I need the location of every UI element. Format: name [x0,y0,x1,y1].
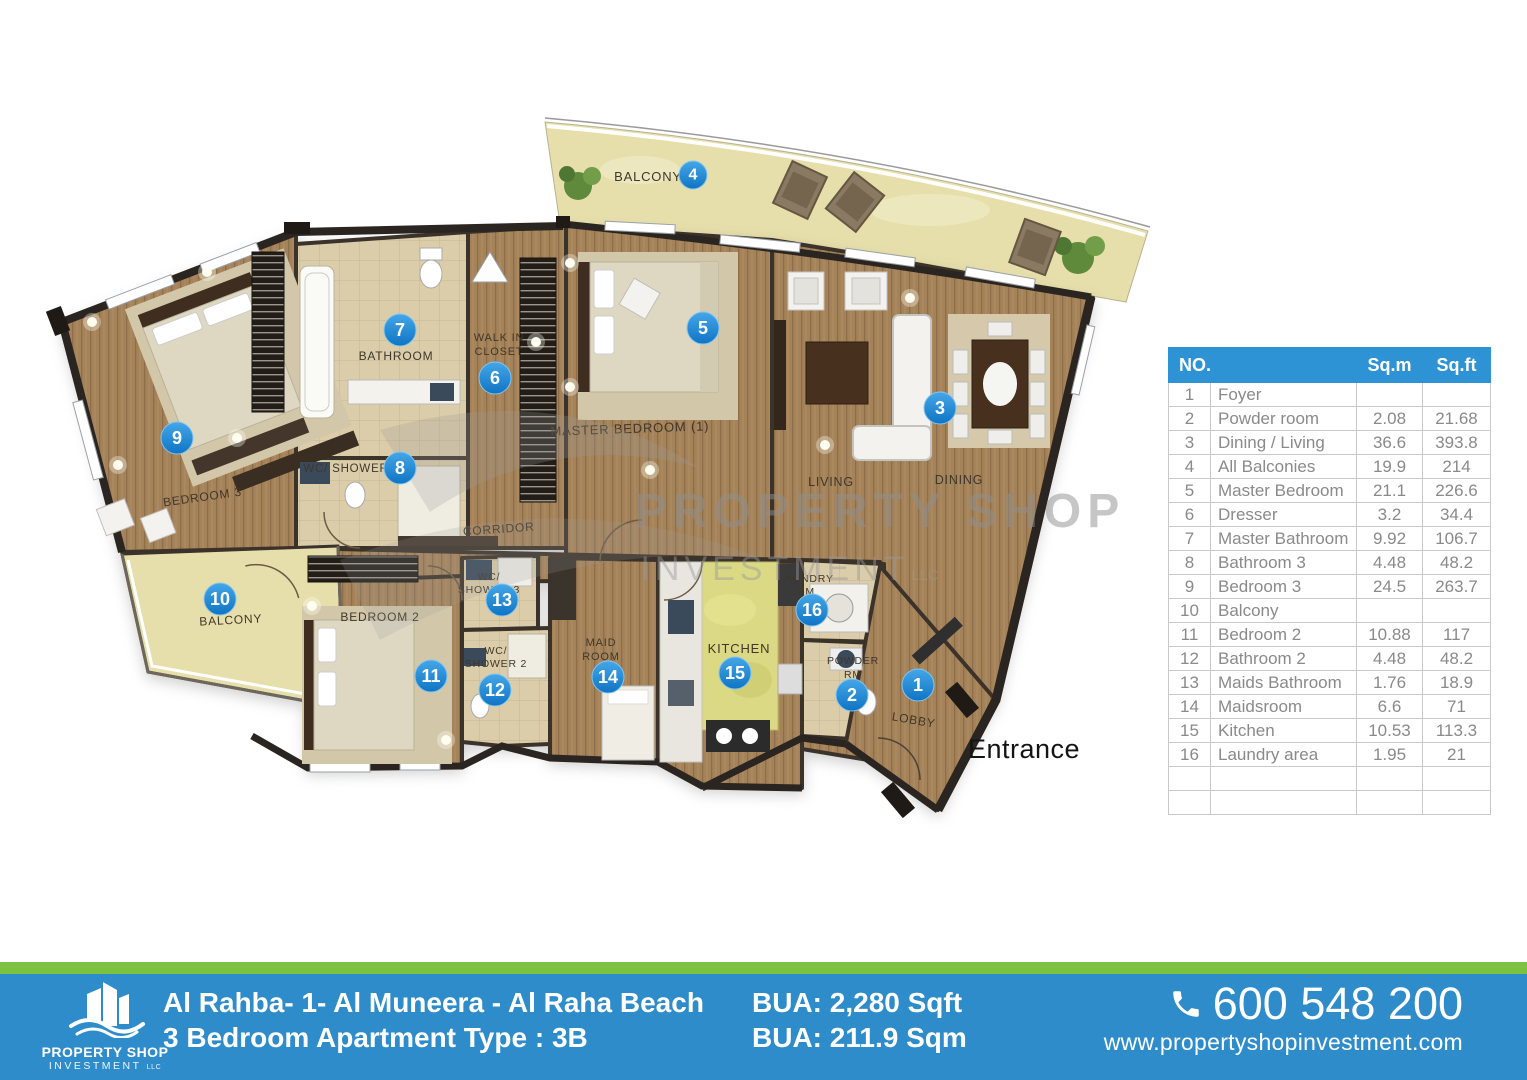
room-sqm: 36.6 [1357,431,1423,455]
hob [668,680,694,706]
room-sqft: 71 [1423,695,1491,719]
room-sqft: 18.9 [1423,671,1491,695]
wardrobe-bedroom-3 [252,252,284,412]
label-walk-in-2: CLOSET [475,346,524,358]
row-number: 3 [1169,431,1211,455]
footer: PROPERTY SHOP INVESTMENT LLC Al Rahba- 1… [0,962,1527,1080]
room-sqm [1357,791,1423,815]
logo-line2: INVESTMENT LLC [30,1060,180,1072]
room-name: Balcony [1211,599,1357,623]
area-table-header: NO. Sq.m Sq.ft [1169,348,1491,383]
room-marker-4: 4 [679,161,707,189]
room-name: Dining / Living [1211,431,1357,455]
header-sqm: Sq.m [1357,348,1423,383]
label-kitchen: KITCHEN [708,641,771,656]
room-sqft [1423,599,1491,623]
label-walk-in-1: WALK IN [474,332,524,344]
room-sqm [1357,599,1423,623]
svg-text:8: 8 [395,458,405,478]
room-sqm: 1.76 [1357,671,1423,695]
company-logo: PROPERTY SHOP INVESTMENT LLC [30,980,180,1072]
bua-sqm: BUA: 211.9 Sqm [752,1020,967,1055]
room-name: All Balconies [1211,455,1357,479]
label-wc2-a: WC/ [485,645,508,657]
table-row: 6Dresser3.234.4 [1169,503,1491,527]
table-row: 7Master Bathroom9.92106.7 [1169,527,1491,551]
room-marker-12: 12 [479,674,511,706]
room-sqft: 226.6 [1423,479,1491,503]
row-number [1169,767,1211,791]
label-balcony-top: BALCONY [614,169,682,184]
area-table-body: 1Foyer2Powder room2.0821.683Dining / Liv… [1169,383,1491,815]
room-name: Laundry area [1211,743,1357,767]
svg-text:7: 7 [395,320,405,340]
label-maid-2: ROOM [582,651,619,663]
svg-text:14: 14 [598,667,618,687]
row-number: 16 [1169,743,1211,767]
svg-text:11: 11 [421,666,440,686]
table-row: 1Foyer [1169,383,1491,407]
table-row: 4All Balconies19.9214 [1169,455,1491,479]
label-wc2-b: SHOWER 2 [465,658,527,670]
room-name [1211,767,1357,791]
svg-text:13: 13 [492,590,512,610]
room-sqm: 4.48 [1357,647,1423,671]
table-row: 10Balcony [1169,599,1491,623]
row-number: 1 [1169,383,1211,407]
room-marker-8: 8 [384,452,416,484]
room-marker-13: 13 [486,584,518,616]
row-number: 12 [1169,647,1211,671]
svg-text:5: 5 [698,318,708,338]
table-row: 8Bathroom 34.4848.2 [1169,551,1491,575]
table-row: 5Master Bedroom21.1226.6 [1169,479,1491,503]
row-number: 14 [1169,695,1211,719]
shower-pan [508,634,546,678]
toilet [420,260,442,288]
row-number: 5 [1169,479,1211,503]
row-number: 6 [1169,503,1211,527]
toilet-tank [420,248,442,260]
bathtub [300,266,334,418]
flyer-page: BALCONY BATHROOM WALK IN CLOSET MASTER B… [0,0,1527,1080]
room-marker-1: 1 [902,669,934,701]
logo-line1: PROPERTY SHOP [30,1044,180,1060]
svg-text:4: 4 [689,167,698,184]
room-marker-9: 9 [161,422,193,454]
row-number: 10 [1169,599,1211,623]
contact-info: 600 548 200 www.propertyshopinvestment.c… [1104,979,1463,1055]
svg-text:6: 6 [490,368,500,388]
row-number: 9 [1169,575,1211,599]
room-name: Kitchen [1211,719,1357,743]
room-sqm: 10.88 [1357,623,1423,647]
room-sqft [1423,767,1491,791]
address-line1: Al Rahba- 1- Al Muneera - Al Raha Beach [163,985,704,1020]
room-sqft: 34.4 [1423,503,1491,527]
footer-bar: PROPERTY SHOP INVESTMENT LLC Al Rahba- 1… [0,974,1527,1080]
row-number: 11 [1169,623,1211,647]
room-sqft: 48.2 [1423,551,1491,575]
row-number [1169,791,1211,815]
row-number: 13 [1169,671,1211,695]
room-name: Maidsroom [1211,695,1357,719]
svg-text:2: 2 [847,685,857,705]
dishwasher [778,664,802,694]
room-name [1211,791,1357,815]
room-sqm: 3.2 [1357,503,1423,527]
room-name: Master Bathroom [1211,527,1357,551]
coffee-table [806,342,868,404]
phone-number: 600 548 200 [1213,979,1463,1029]
room-sqft: 48.2 [1423,647,1491,671]
svg-text:12: 12 [485,680,505,700]
room-name: Master Bedroom [1211,479,1357,503]
room-name: Bedroom 2 [1211,623,1357,647]
room-sqft [1423,383,1491,407]
table-row: 15Kitchen10.53113.3 [1169,719,1491,743]
room-name: Foyer [1211,383,1357,407]
tv-unit [774,320,786,430]
watermark-suffix: LLC [911,567,939,584]
room-sqm: 9.92 [1357,527,1423,551]
stove [706,720,770,752]
row-number: 7 [1169,527,1211,551]
room-sqm: 24.5 [1357,575,1423,599]
entrance-label: Entrance [968,734,1080,764]
room-sqm: 6.6 [1357,695,1423,719]
property-address: Al Rahba- 1- Al Muneera - Al Raha Beach … [163,985,704,1055]
room-name: Bedroom 3 [1211,575,1357,599]
table-row: 3Dining / Living36.6393.8 [1169,431,1491,455]
room-sqft: 106.7 [1423,527,1491,551]
watermark-line2: INVESTMENT [640,550,909,588]
room-name: Bathroom 2 [1211,647,1357,671]
room-marker-10: 10 [204,583,236,615]
room-sqft: 21.68 [1423,407,1491,431]
row-number: 2 [1169,407,1211,431]
row-number: 4 [1169,455,1211,479]
table-row [1169,791,1491,815]
room-sqm: 4.48 [1357,551,1423,575]
room-marker-6: 6 [479,362,511,394]
room-marker-2: 2 [836,679,868,711]
bua-sqft: BUA: 2,280 Sqft [752,985,967,1020]
row-number: 15 [1169,719,1211,743]
label-maid-1: MAID [586,637,617,649]
room-sqm: 21.1 [1357,479,1423,503]
kitchen-counter [660,562,702,762]
property-shop-logo-icon [57,980,153,1038]
room-sqft: 21 [1423,743,1491,767]
room-sqft: 263.7 [1423,575,1491,599]
svg-text:9: 9 [172,428,182,448]
room-name: Dresser [1211,503,1357,527]
toilet [345,482,365,508]
table-row: 16Laundry area1.9521 [1169,743,1491,767]
header-sqft: Sq.ft [1423,348,1491,383]
address-line2: 3 Bedroom Apartment Type : 3B [163,1020,704,1055]
room-sqft: 117 [1423,623,1491,647]
room-sqm: 2.08 [1357,407,1423,431]
room-marker-15: 15 [719,657,751,689]
table-row: 11Bedroom 210.88117 [1169,623,1491,647]
kitchen-sink [668,600,694,634]
website-url: www.propertyshopinvestment.com [1104,1029,1463,1055]
room-sqm: 1.95 [1357,743,1423,767]
footer-green-strip [0,962,1527,974]
phone-icon [1169,987,1203,1021]
row-number: 8 [1169,551,1211,575]
area-table: NO. Sq.m Sq.ft 1Foyer2Powder room2.0821.… [1168,347,1491,815]
room-sqft [1423,791,1491,815]
table-row: 2Powder room2.0821.68 [1169,407,1491,431]
room-marker-16: 16 [796,594,828,626]
bua-info: BUA: 2,280 Sqft BUA: 211.9 Sqm [752,985,967,1055]
sink [430,383,454,401]
room-marker-14: 14 [592,661,624,693]
room-sqm: 10.53 [1357,719,1423,743]
room-name: Bathroom 3 [1211,551,1357,575]
room-marker-3: 3 [924,392,956,424]
table-row: 9Bedroom 324.5263.7 [1169,575,1491,599]
header-no: NO. [1169,348,1357,383]
dining-set [948,314,1050,448]
svg-text:10: 10 [210,589,230,609]
svg-text:3: 3 [935,398,945,418]
watermark-line1: PROPERTY SHOP [635,485,1126,538]
room-sqft: 214 [1423,455,1491,479]
logo-llc: LLC [147,1064,161,1071]
room-marker-5: 5 [687,312,719,344]
room-sqm [1357,767,1423,791]
room-marker-11: 11 [415,660,447,692]
table-row [1169,767,1491,791]
room-sqm [1357,383,1423,407]
room-name: Powder room [1211,407,1357,431]
table-row: 12Bathroom 24.4848.2 [1169,647,1491,671]
room-sqft: 393.8 [1423,431,1491,455]
svg-text:1: 1 [913,675,923,695]
label-powder-1: POWDER [827,655,879,667]
room-sqft: 113.3 [1423,719,1491,743]
room-sqm: 19.9 [1357,455,1423,479]
label-bathroom: BATHROOM [359,349,434,363]
svg-text:15: 15 [725,663,745,683]
room-name: Maids Bathroom [1211,671,1357,695]
svg-text:16: 16 [802,600,822,620]
table-row: 13Maids Bathroom1.7618.9 [1169,671,1491,695]
label-wc-shower: WC/ SHOWER [303,463,388,475]
table-row: 14Maidsroom6.671 [1169,695,1491,719]
room-marker-7: 7 [384,314,416,346]
